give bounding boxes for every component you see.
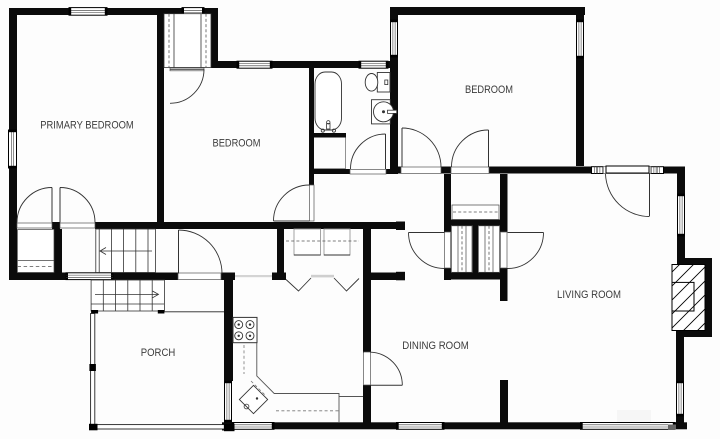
svg-text:PORCH: PORCH (141, 347, 176, 359)
svg-text:PRIMARY BEDROOM: PRIMARY BEDROOM (40, 119, 134, 131)
svg-text:BEDROOM: BEDROOM (465, 84, 513, 96)
svg-text:LIVING ROOM: LIVING ROOM (557, 289, 621, 301)
svg-text:BEDROOM: BEDROOM (213, 138, 261, 150)
svg-text:DINING ROOM: DINING ROOM (402, 340, 469, 352)
